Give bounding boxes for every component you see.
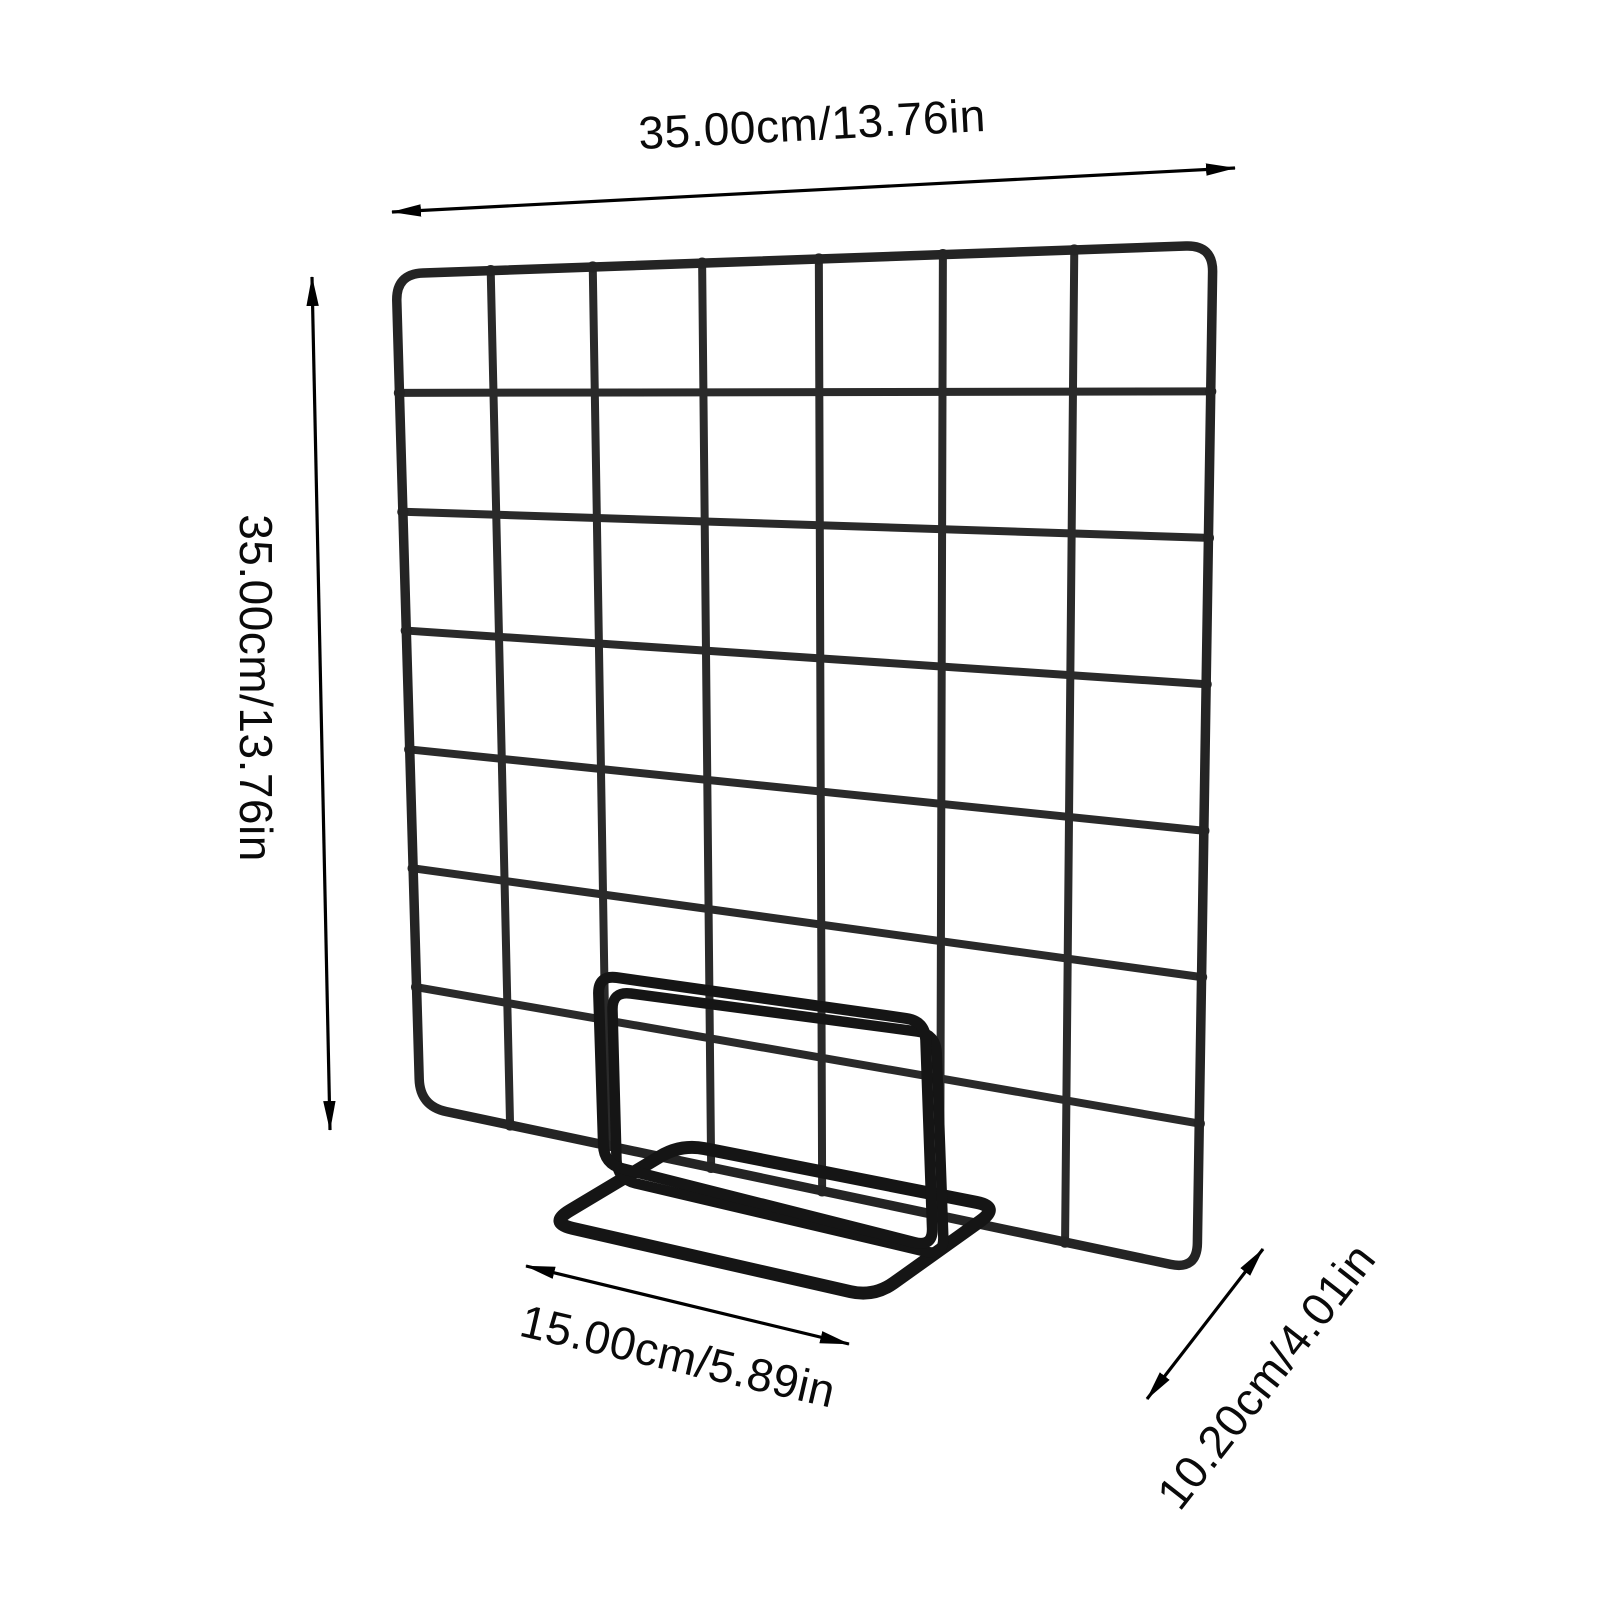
weld-node (1196, 972, 1207, 983)
diagram-stage: 35.00cm/13.76in 35.00cm/13.76in 15.00cm/… (0, 0, 1600, 1600)
grid-wire-horizontal-2 (403, 512, 1209, 538)
weld-node (408, 863, 419, 874)
height-dimension-arrow (312, 277, 330, 1130)
weld-node (397, 506, 408, 517)
base-width-dimension-label: 15.00cm/5.89in (515, 1295, 840, 1418)
weld-node (1205, 386, 1216, 397)
grid-wire-horizontal-3 (406, 631, 1206, 685)
weld-node (587, 261, 598, 272)
grid-wire-horizontal-5 (413, 868, 1201, 977)
weld-node (1198, 825, 1209, 836)
base-depth-dimension-label: 10.20cm/4.01in (1147, 1233, 1386, 1518)
weld-node (1203, 532, 1214, 543)
weld-node (697, 258, 708, 269)
weld-node (817, 1185, 828, 1196)
weld-node (504, 1119, 515, 1130)
weld-node (485, 265, 496, 276)
dimension-base-depth: 10.20cm/4.01in (1147, 1233, 1386, 1518)
weld-node (706, 1162, 717, 1173)
weld-node (1059, 1237, 1070, 1248)
weld-node (394, 387, 405, 398)
grid-wire-vertical-4 (819, 259, 822, 1191)
dimension-width: 35.00cm/13.76in (392, 89, 1235, 212)
grid-wire-horizontal-1 (399, 391, 1210, 392)
weld-node (1069, 244, 1080, 255)
weld-node (1194, 1118, 1205, 1129)
grid-wire-vertical-3 (702, 263, 711, 1167)
weld-node (411, 982, 422, 993)
weld-node (1201, 679, 1212, 690)
grid-wire-vertical-6 (1065, 250, 1074, 1242)
product-dimension-diagram: 35.00cm/13.76in 35.00cm/13.76in 15.00cm/… (0, 0, 1600, 1600)
weld-node (813, 253, 824, 264)
wire-grid-panel (394, 244, 1216, 1265)
weld-node (937, 249, 948, 260)
panel-frame (397, 246, 1213, 1265)
width-dimension-arrow (392, 168, 1235, 212)
width-dimension-label: 35.00cm/13.76in (637, 89, 987, 159)
weld-node (404, 744, 415, 755)
weld-node (401, 625, 412, 636)
height-dimension-label: 35.00cm/13.76in (230, 514, 282, 862)
grid-wire-horizontal-4 (410, 749, 1204, 830)
dimension-height: 35.00cm/13.76in (230, 277, 330, 1130)
dimension-base-width: 15.00cm/5.89in (515, 1266, 849, 1417)
